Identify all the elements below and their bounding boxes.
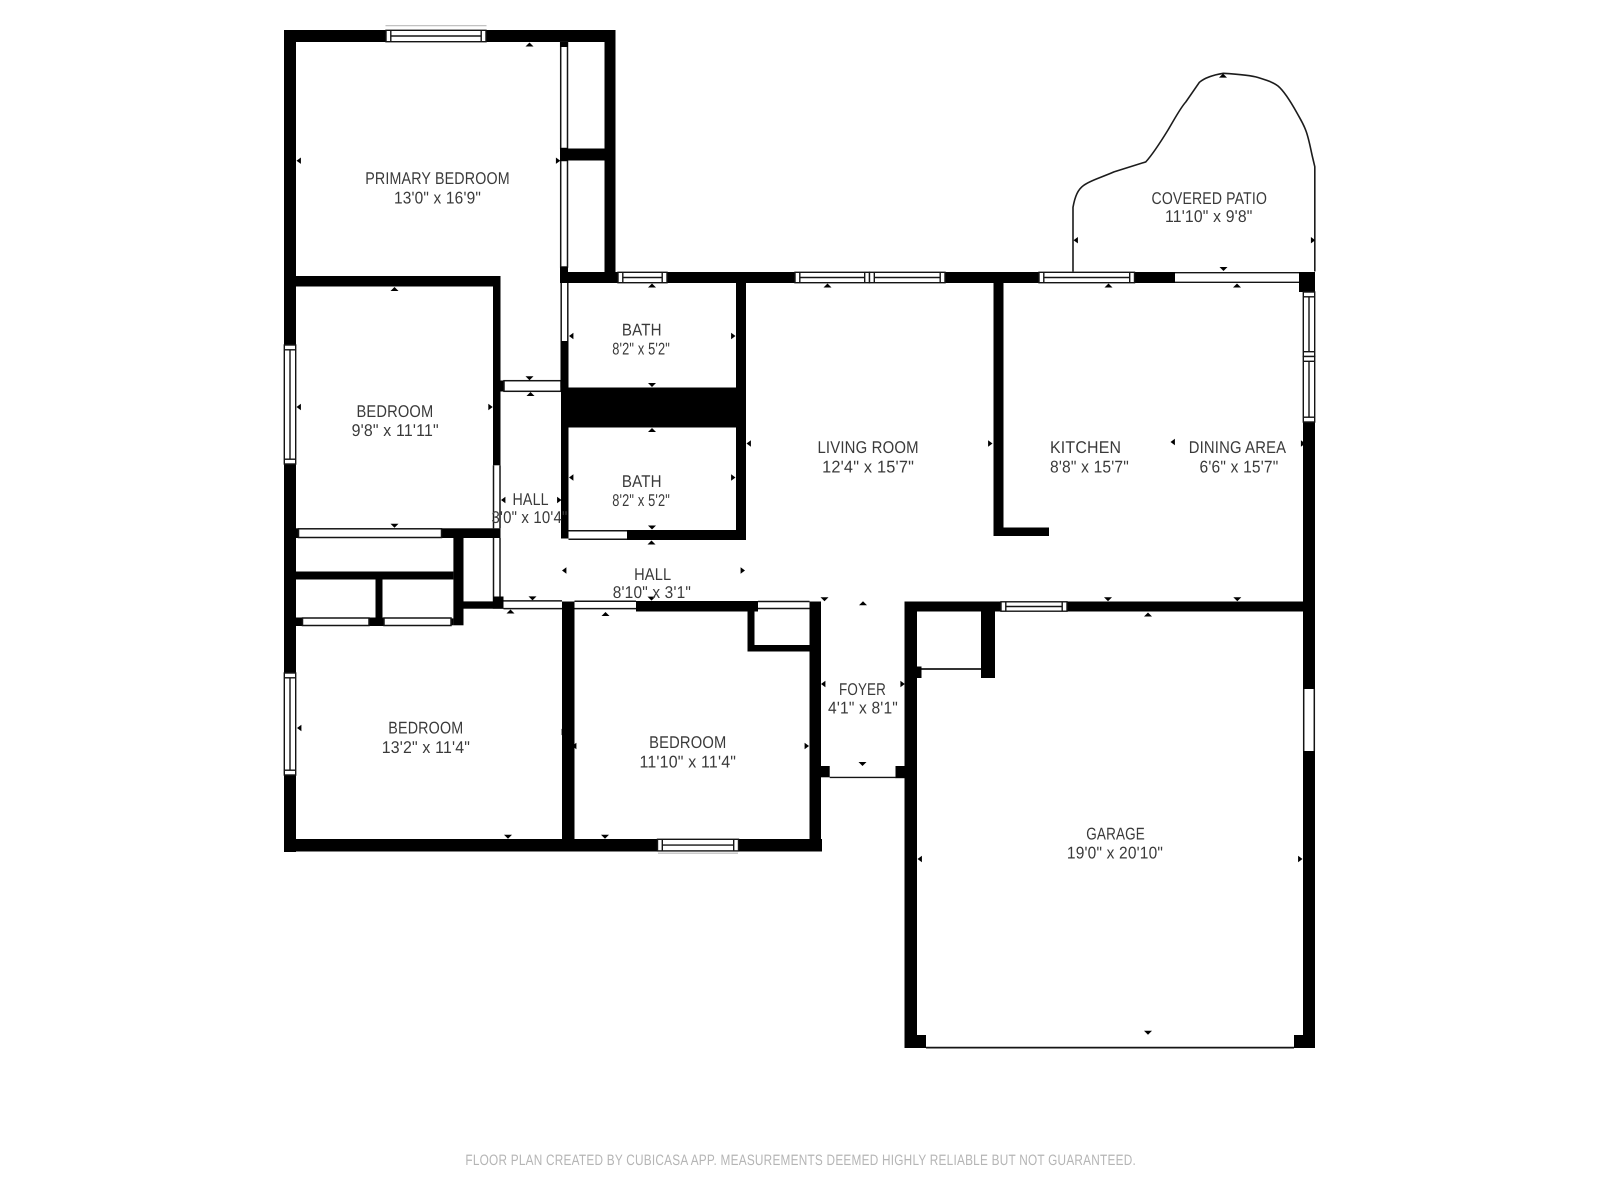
svg-text:9'8" x 11'11": 9'8" x 11'11": [352, 421, 439, 440]
svg-text:4'1" x 8'1": 4'1" x 8'1": [828, 698, 898, 717]
svg-text:BEDROOM: BEDROOM: [356, 402, 433, 421]
svg-text:BATH: BATH: [622, 472, 662, 491]
svg-text:FLOOR PLAN CREATED BY CUBICASA: FLOOR PLAN CREATED BY CUBICASA APP. MEAS…: [465, 1152, 1136, 1169]
svg-text:8'8" x 15'7": 8'8" x 15'7": [1050, 457, 1129, 476]
svg-text:FOYER: FOYER: [839, 680, 886, 699]
svg-text:KITCHEN: KITCHEN: [1050, 438, 1121, 457]
svg-text:DINING AREA: DINING AREA: [1189, 438, 1287, 457]
svg-text:8'10" x 3'1": 8'10" x 3'1": [613, 583, 691, 602]
svg-text:19'0" x 20'10": 19'0" x 20'10": [1067, 843, 1163, 862]
svg-text:13'0" x 16'9": 13'0" x 16'9": [394, 189, 481, 208]
svg-text:11'10" x 9'8": 11'10" x 9'8": [1165, 207, 1253, 226]
svg-text:8'2" x 5'2": 8'2" x 5'2": [612, 491, 670, 510]
svg-text:BEDROOM: BEDROOM: [388, 718, 463, 737]
svg-text:11'10" x 11'4": 11'10" x 11'4": [639, 752, 736, 771]
svg-text:HALL: HALL: [513, 490, 549, 509]
svg-text:LIVING ROOM: LIVING ROOM: [817, 438, 918, 457]
svg-text:PRIMARY BEDROOM: PRIMARY BEDROOM: [365, 169, 510, 188]
svg-text:13'2" x 11'4": 13'2" x 11'4": [382, 738, 470, 757]
svg-text:6'6" x 15'7": 6'6" x 15'7": [1200, 457, 1279, 476]
svg-text:GARAGE: GARAGE: [1086, 824, 1145, 843]
svg-text:3'0" x 10'4": 3'0" x 10'4": [492, 508, 568, 527]
svg-text:12'4" x 15'7": 12'4" x 15'7": [822, 457, 914, 476]
svg-text:BEDROOM: BEDROOM: [649, 733, 726, 752]
svg-text:8'2" x 5'2": 8'2" x 5'2": [612, 340, 670, 359]
svg-text:HALL: HALL: [634, 565, 671, 584]
svg-text:BATH: BATH: [622, 320, 662, 339]
svg-text:COVERED PATIO: COVERED PATIO: [1152, 189, 1268, 208]
